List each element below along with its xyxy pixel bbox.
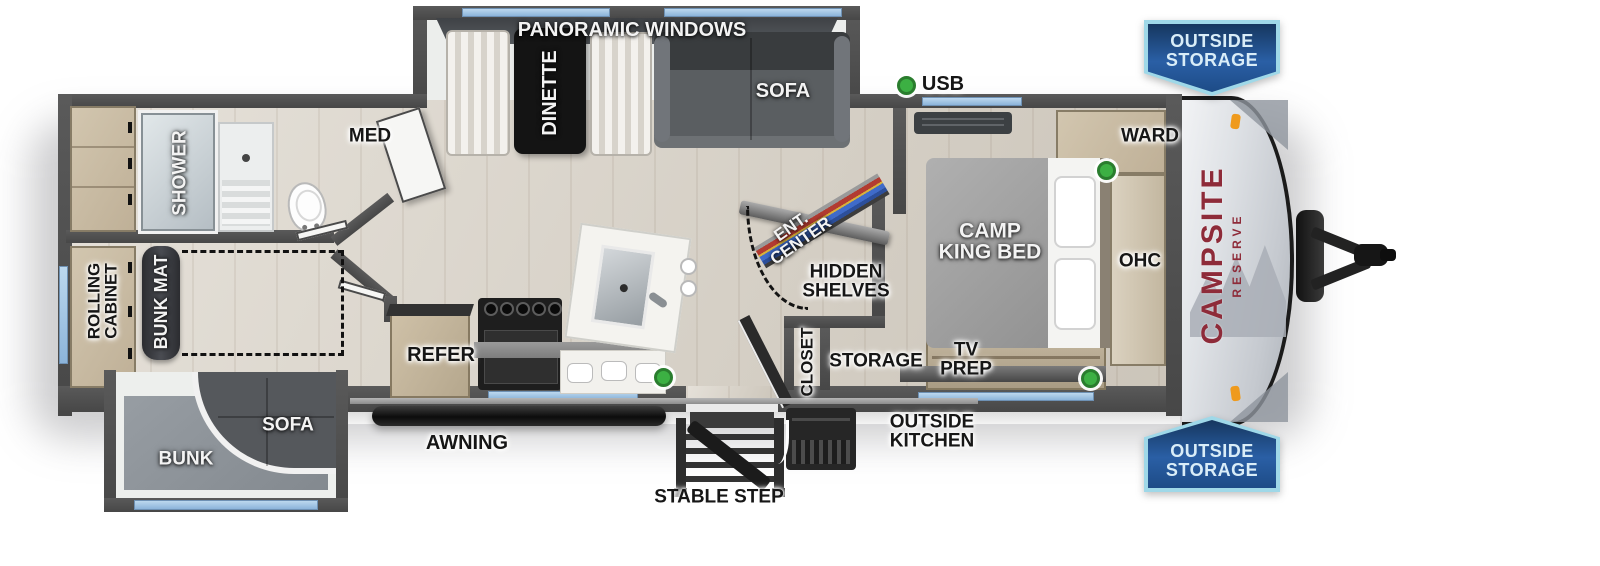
label-line: SHELVES <box>802 282 889 301</box>
tv-prep-counter <box>900 366 1106 382</box>
rear-wardrobe <box>70 106 136 232</box>
floorplan-canvas: CAMPSITE RESERVE <box>0 0 1600 566</box>
refrigerator-top-vent <box>386 304 474 316</box>
label-line: CAMP <box>939 221 1042 242</box>
stove-burner <box>516 302 530 316</box>
closet-left-wall <box>784 328 794 390</box>
label-tv-prep: TV PREP <box>940 341 992 380</box>
label-hidden-shelves: HIDDEN SHELVES <box>802 263 889 302</box>
wardrobe-shelf-line <box>72 186 134 188</box>
label-line: OUTSIDE <box>890 413 974 432</box>
bedroom-partition-wall <box>893 108 906 214</box>
stove-burner <box>484 302 498 316</box>
label-ward: WARD <box>1121 126 1179 145</box>
brand-campsite: CAMPSITE <box>1196 145 1230 365</box>
bed-pillow <box>1054 258 1096 330</box>
counter-cup <box>680 280 697 297</box>
label-closet: CLOSET <box>798 328 815 397</box>
stove-burner <box>500 302 514 316</box>
slide-top-window-right <box>664 8 842 17</box>
label-rolling-cabinet: ROLLING CABINET <box>86 263 121 340</box>
slide-bunk-right-wall <box>336 370 348 512</box>
dinette-bench-left <box>446 30 510 156</box>
label-bunk: BUNK <box>159 449 214 468</box>
shower-pan <box>218 122 274 232</box>
label-line: PREP <box>940 360 992 379</box>
closet-top-wall <box>784 316 885 328</box>
hitch-assembly <box>1280 200 1400 320</box>
dish <box>567 363 593 383</box>
hitch-ball-stub <box>1380 249 1396 261</box>
label-awning: AWNING <box>426 433 508 453</box>
wardrobe-hinge <box>128 158 132 169</box>
sink-drain <box>619 284 628 293</box>
sofa-front-edge <box>654 136 850 148</box>
usb-indicator-dot <box>654 368 673 387</box>
slide-bunk-window <box>134 500 318 510</box>
label-storage: STORAGE <box>829 351 923 370</box>
usb-indicator-dot <box>1081 369 1100 388</box>
slide-bunk-left-wall <box>104 370 116 512</box>
slide-top-window-left <box>462 8 610 17</box>
badge-text: OUTSIDE STORAGE <box>1144 442 1280 481</box>
badge-line: STORAGE <box>1144 461 1280 480</box>
griddle-lid-line <box>792 418 850 421</box>
label-line: KING BED <box>939 242 1042 263</box>
step-rail-left <box>676 418 686 490</box>
label-line: TV <box>940 341 992 360</box>
stove-burner <box>532 302 546 316</box>
rolling-cabinet-hinge <box>128 262 132 273</box>
bed-pillow <box>1054 176 1096 248</box>
label-dinette: DINETTE <box>540 50 560 136</box>
wardrobe-hinge <box>128 122 132 133</box>
toilet-seat-ring <box>293 187 325 224</box>
counter-dish-area <box>560 350 666 394</box>
awning-rail <box>350 398 978 404</box>
shower-bench-slats <box>222 180 270 226</box>
headboard <box>1100 158 1110 348</box>
usb-indicator-dot <box>897 76 916 95</box>
shower-drain <box>242 154 250 162</box>
wardrobe-hinge <box>128 194 132 205</box>
rolling-cabinet-hinge <box>128 306 132 317</box>
badge-line: OUTSIDE <box>1144 32 1280 51</box>
stove-burner <box>548 302 562 316</box>
ent-center-wall <box>872 192 885 322</box>
label-line: HIDDEN <box>802 263 889 282</box>
sofa-seam <box>750 38 752 140</box>
bedroom-top-window <box>922 97 1022 106</box>
rolling-cabinet-hinge <box>128 348 132 359</box>
vent-fin <box>922 118 1004 120</box>
outside-storage-badge-bottom: OUTSIDE STORAGE <box>1144 416 1280 492</box>
badge-line: OUTSIDE <box>1144 442 1280 461</box>
label-line: CABINET <box>103 263 120 340</box>
dinette-bench-right <box>590 32 652 156</box>
sofa-armrest-left <box>654 36 670 142</box>
rear-side-window <box>59 266 68 364</box>
living-sofa <box>654 32 850 148</box>
kitchen-sink <box>591 245 655 330</box>
sofa-seat <box>654 70 850 140</box>
label-sofa-bunk: SOFA <box>262 415 314 434</box>
outside-kitchen-griddle <box>786 408 856 470</box>
vent-fin <box>922 124 1004 126</box>
ac-vent <box>914 112 1012 134</box>
griddle-grill-lines <box>792 440 850 464</box>
brand-reserve: RESERVE <box>1230 195 1246 315</box>
wardrobe-shelf-line <box>72 146 134 148</box>
label-sofa-slide: SOFA <box>756 81 810 101</box>
label-stable-step: STABLE STEP <box>654 487 784 506</box>
bunk-overhead-outline <box>182 250 344 356</box>
label-camp-king-bed: CAMP KING BED <box>939 221 1042 264</box>
cap-marker-light-top <box>1230 113 1241 129</box>
label-line: ROLLING <box>86 263 103 340</box>
counter-cup <box>680 258 697 275</box>
dish <box>601 361 627 381</box>
outside-storage-badge-top: OUTSIDE STORAGE <box>1144 20 1280 96</box>
label-line: KITCHEN <box>890 432 974 451</box>
badge-line: STORAGE <box>1144 51 1280 70</box>
label-shower: SHOWER <box>170 130 189 216</box>
label-ohc: OHC <box>1119 251 1161 270</box>
label-outside-kitchen: OUTSIDE KITCHEN <box>890 413 974 452</box>
slide-top-left-wall <box>413 6 427 106</box>
label-usb: USB <box>922 74 964 94</box>
usb-indicator-dot <box>1097 161 1116 180</box>
sofa-armrest-right <box>834 36 850 142</box>
label-med: MED <box>349 126 391 145</box>
label-panoramic-windows: PANORAMIC WINDOWS <box>518 20 747 40</box>
cap-marker-light-bottom <box>1230 385 1241 401</box>
label-bunk-mat: BUNK MAT <box>152 255 170 350</box>
awning-roller-bar <box>372 406 666 426</box>
label-refer: REFER <box>407 345 475 365</box>
badge-text: OUTSIDE STORAGE <box>1144 32 1280 71</box>
